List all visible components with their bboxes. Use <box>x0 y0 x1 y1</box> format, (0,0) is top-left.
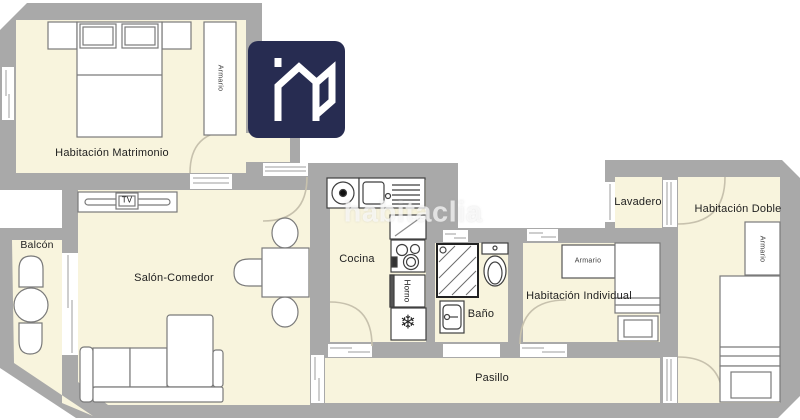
opening-cocina-door <box>328 344 372 357</box>
shower-drain <box>440 247 446 253</box>
nightstand-inner <box>624 320 652 337</box>
cooktop-dot <box>340 190 347 197</box>
room-label-bano: Baño <box>468 308 495 320</box>
nightstand-inner <box>731 372 771 398</box>
window-balcony-slider <box>62 253 78 355</box>
window-bano <box>443 230 468 242</box>
balcony-chair <box>19 323 42 354</box>
toilet-button <box>493 246 497 250</box>
freezer-snowflake-icon: ❄ <box>400 312 416 335</box>
wardrobe-label-matrimonio: Armario <box>217 65 224 92</box>
pillow <box>83 27 113 45</box>
pillow <box>125 27 155 45</box>
wardrobe-label-individual: Armario <box>575 258 602 265</box>
dining-chair <box>272 218 298 248</box>
sofa-chaise <box>167 315 213 387</box>
balcony-chair <box>19 256 43 287</box>
single-bed <box>615 243 660 313</box>
double-bed-2 <box>720 276 780 366</box>
window-matrimonio <box>2 67 14 120</box>
toilet-bowl-inner <box>488 262 502 284</box>
tv-label: TV <box>122 196 133 205</box>
room-label-individual: Habitación Individual <box>526 290 632 302</box>
opening-salon-entry <box>263 163 308 176</box>
stove-control <box>392 257 397 267</box>
floor-plan: habitaclia Habitación Matrimonio Balcón … <box>0 0 800 420</box>
room-label-salon: Salón-Comedor <box>134 272 214 284</box>
dining-chair <box>234 259 262 286</box>
burner <box>411 245 420 254</box>
room-label-balcon: Balcón <box>20 239 53 251</box>
room-label-cocina: Cocina <box>339 253 374 265</box>
opening-individual-door <box>520 344 567 357</box>
habitaclia-house-icon <box>248 41 345 138</box>
sofa-cushion <box>130 348 167 387</box>
room-label-pasillo: Pasillo <box>475 372 509 384</box>
oven-edge <box>390 275 394 307</box>
dining-table <box>262 248 309 297</box>
room-label-matrimonio: Habitación Matrimonio <box>55 147 169 159</box>
opening-doble-door <box>663 357 677 403</box>
watermark: habitaclia <box>344 197 483 230</box>
opening-pasillo-salon-door <box>311 355 324 403</box>
sofa-armrest <box>80 347 93 402</box>
burner <box>397 245 408 256</box>
window-individual <box>527 229 558 241</box>
wardrobe-label-doble: Armario <box>759 236 766 263</box>
nightstand <box>162 22 191 49</box>
sofa-armrest <box>213 350 223 387</box>
dining-chair <box>272 297 298 327</box>
room-label-lavadero: Lavadero <box>614 196 661 208</box>
room-label-doble: Habitación Doble <box>695 203 782 215</box>
burner <box>407 258 416 267</box>
opening-lavadero-doble <box>663 180 677 227</box>
habitaclia-logo <box>248 41 345 138</box>
sink-tap <box>445 315 450 320</box>
balcony-table <box>14 288 48 322</box>
oven-label: Horno <box>403 280 412 303</box>
sofa-front <box>93 387 223 402</box>
nightstand <box>48 22 77 49</box>
opening-bano-door <box>443 344 500 357</box>
sofa-cushion <box>93 348 130 387</box>
opening-matrimonio-door <box>190 174 232 189</box>
